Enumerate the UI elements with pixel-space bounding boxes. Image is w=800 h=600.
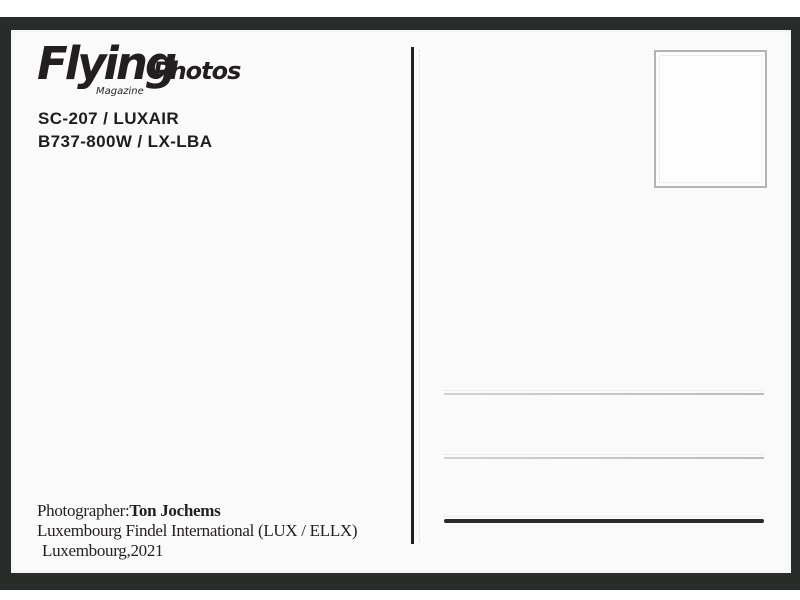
caption-series-airline: SC-207 / LUXAIR: [38, 107, 212, 130]
location-line: Luxembourg Findel International (LUX / E…: [37, 521, 357, 541]
stamp-box-inner-border: [659, 55, 762, 183]
address-line-1: [444, 390, 764, 395]
photographer-line: Photographer:Ton Jochems: [37, 501, 357, 521]
address-line-3-rule: [444, 519, 764, 523]
caption-aircraft-registration: B737-800W / LX-LBA: [38, 130, 212, 153]
address-line-3-perforation: [444, 516, 764, 517]
photo-credits: Photographer:Ton Jochems Luxembourg Find…: [37, 501, 357, 561]
address-line-2-rule: [444, 457, 764, 459]
postcard-back: Flying Photos Magazine SC-207 / LUXAIR B…: [11, 30, 791, 573]
stamp-box: [654, 50, 767, 188]
logo-subtitle-text: Magazine: [96, 86, 144, 97]
center-divider-line: [411, 47, 414, 544]
address-line-1-rule: [444, 393, 764, 395]
address-line-3: [444, 516, 764, 523]
center-divider-perforation: [419, 50, 420, 542]
flight-caption: SC-207 / LUXAIR B737-800W / LX-LBA: [38, 107, 212, 153]
address-line-1-perforation: [444, 390, 764, 391]
address-line-2: [444, 454, 764, 459]
photographer-name: Ton Jochems: [129, 501, 220, 520]
address-line-2-perforation: [444, 454, 764, 455]
place-year-line: Luxembourg,2021: [37, 541, 357, 561]
logo-suffix-text: Photos: [153, 58, 240, 84]
photographer-label: Photographer:: [37, 501, 129, 520]
